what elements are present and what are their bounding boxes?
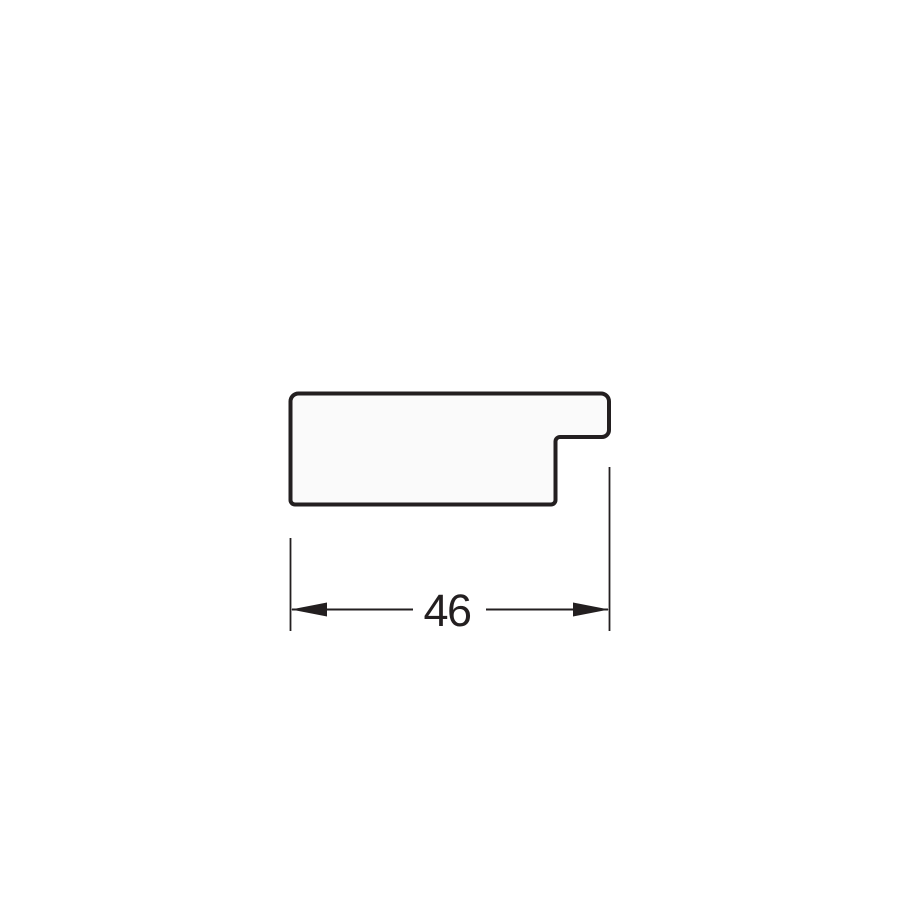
moulding-profile-diagram: 46 xyxy=(0,0,900,900)
arrowhead-left-icon xyxy=(291,603,327,617)
moulding-profile-outline xyxy=(291,394,610,505)
dimension-value: 46 xyxy=(423,585,471,636)
arrowhead-right-icon xyxy=(573,603,609,617)
drawing-canvas: 46 xyxy=(0,0,900,900)
